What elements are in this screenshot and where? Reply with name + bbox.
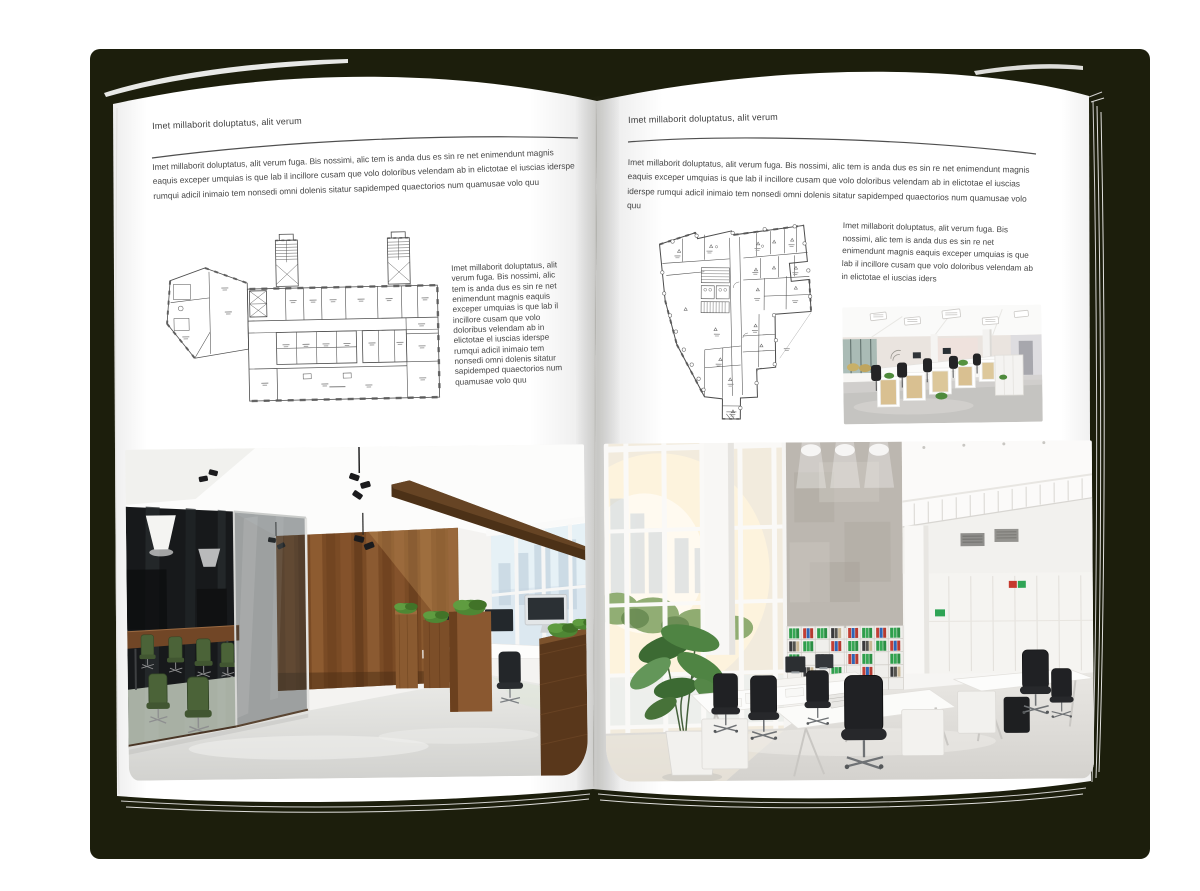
right-caption-text: Imet millaborit doluptatus, alit verum f… (841, 220, 1039, 289)
plan-room-labels (181, 283, 430, 391)
left-caption-text: Imet millaborit doluptatus, alit verum f… (451, 260, 573, 388)
floor-plan-left (148, 221, 452, 419)
monitor (815, 654, 833, 668)
safety-sign (1009, 581, 1017, 588)
office-photo-left (125, 444, 588, 781)
wood-cabinet-foreground (539, 619, 588, 776)
waste-bin (1004, 697, 1030, 733)
office-photo-right (604, 440, 1094, 781)
conference-room (126, 505, 241, 746)
right-intro-text: Imet millaborit doluptatus, alit verum f… (627, 155, 1032, 220)
monitor (785, 656, 805, 672)
book-mockup: Imet millaborit doluptatus, alit verum I… (0, 0, 1200, 891)
exit-sign (935, 609, 945, 616)
back-cabinets (905, 572, 1094, 673)
plan-markers (673, 238, 798, 417)
concrete-wall (786, 442, 903, 629)
office-photo-small (842, 305, 1043, 425)
side-cabinets (995, 355, 1024, 395)
mezzanine (902, 440, 1093, 573)
safety-sign (1018, 581, 1026, 588)
tall-column (704, 443, 735, 655)
floor-plan-right (643, 217, 844, 424)
